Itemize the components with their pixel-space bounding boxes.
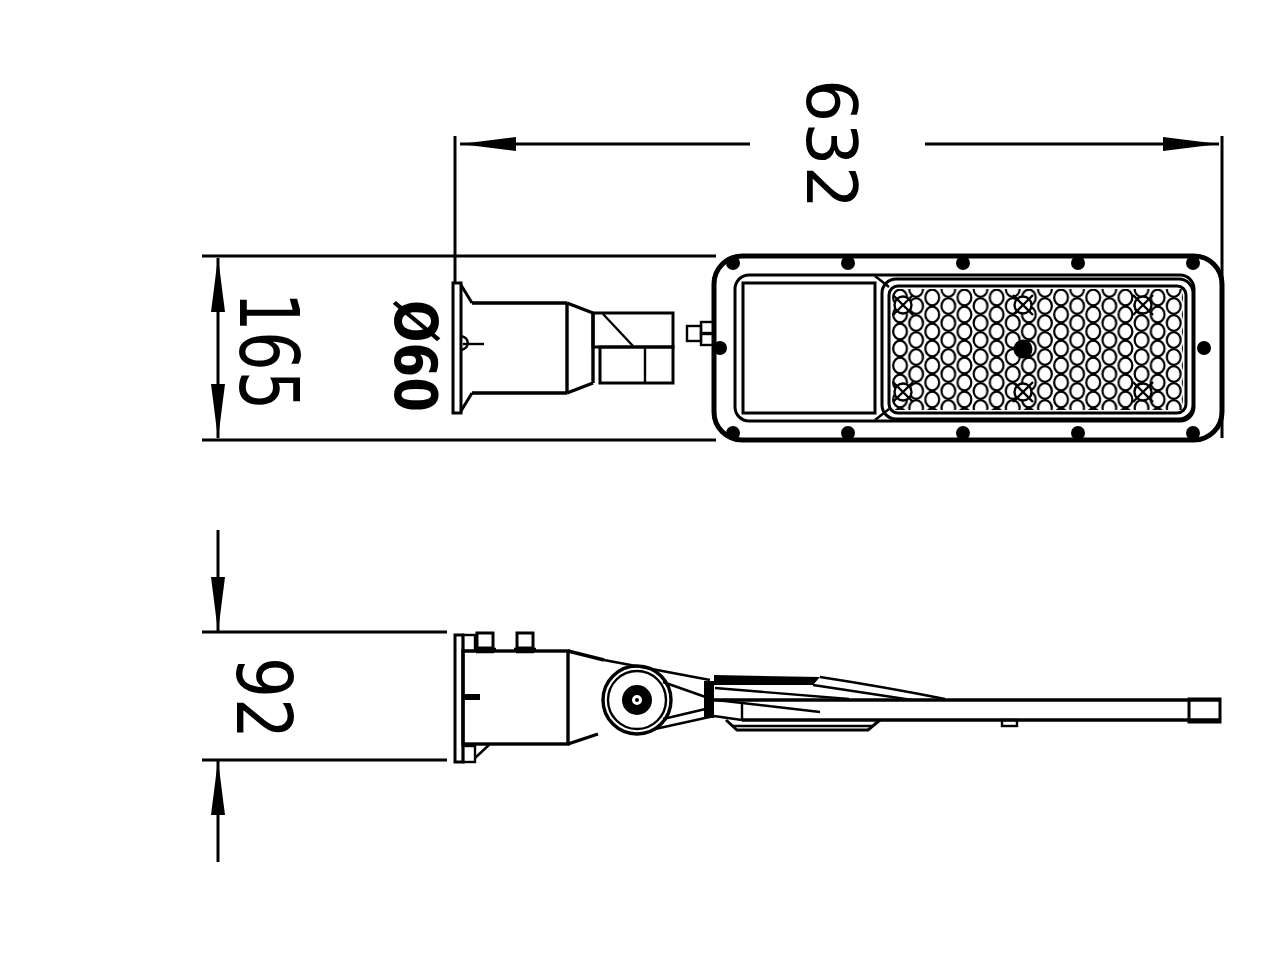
cross-screw-icon bbox=[1013, 382, 1033, 402]
cross-screw-icon bbox=[1013, 295, 1033, 315]
driver-compartment bbox=[743, 283, 875, 413]
arrowhead-left-icon bbox=[460, 137, 516, 151]
plate-chamfer bbox=[475, 744, 490, 758]
screw-dot-icon bbox=[841, 426, 855, 440]
clamp-plate bbox=[453, 283, 461, 413]
arrowhead-up-icon bbox=[211, 760, 225, 815]
screw-dot-icon bbox=[726, 256, 740, 270]
pole-clamp-side bbox=[455, 633, 604, 762]
neck-cover-band bbox=[714, 675, 820, 685]
cross-screw-icon bbox=[1133, 382, 1153, 402]
screw-dot-icon bbox=[1186, 256, 1200, 270]
dim-pole-diameter-label: Ø60 bbox=[381, 300, 449, 412]
clamp-notch bbox=[463, 694, 480, 700]
plate-tab-bottom bbox=[463, 746, 475, 762]
dim-mount-height-label: 92 bbox=[219, 657, 308, 739]
dimension-mount-height: 92 bbox=[202, 530, 447, 862]
side-view: 92 bbox=[202, 530, 1220, 862]
clamp-body bbox=[472, 303, 567, 393]
arm-lower bbox=[600, 347, 673, 383]
screw-dot-icon bbox=[1186, 426, 1200, 440]
clamp-taper bbox=[567, 303, 593, 393]
clamp-bolt-icon bbox=[474, 633, 496, 652]
arm-upper bbox=[593, 313, 673, 347]
screw-dot-icon bbox=[841, 256, 855, 270]
screw-dot-icon bbox=[713, 341, 727, 355]
dim-overall-length-label: 632 bbox=[790, 79, 872, 209]
plate-tab-top bbox=[463, 635, 475, 651]
housing-plan bbox=[713, 256, 1222, 440]
photocell-bump bbox=[1002, 720, 1017, 726]
arrowhead-down-icon bbox=[211, 577, 225, 632]
screw-dot-icon bbox=[956, 426, 970, 440]
arm-diagonal bbox=[603, 314, 633, 346]
clamp-taper bbox=[568, 651, 604, 744]
arm-stub bbox=[687, 326, 701, 341]
screw-dot-icon bbox=[1197, 341, 1211, 355]
arrowhead-right-icon bbox=[1163, 137, 1219, 151]
street-light-drawing: 632 165 Ø60 bbox=[0, 0, 1280, 960]
cross-screw-icon bbox=[893, 382, 913, 402]
top-view: 632 165 Ø60 bbox=[202, 79, 1222, 440]
screw-dot-icon bbox=[1071, 256, 1085, 270]
technical-drawing-page: 632 165 Ø60 bbox=[0, 0, 1280, 960]
cross-screw-icon bbox=[1133, 295, 1153, 315]
screw-dot-icon bbox=[956, 256, 970, 270]
mounting-bracket-plan bbox=[453, 283, 714, 413]
screw-dot-icon bbox=[1071, 426, 1085, 440]
clamp-bolt-icon bbox=[514, 633, 536, 652]
dim-housing-width-label: 165 bbox=[221, 292, 316, 410]
luminaire-body-side bbox=[712, 675, 1220, 730]
pivot-knuckle bbox=[603, 660, 742, 734]
cross-screw-icon bbox=[893, 295, 913, 315]
center-plug-dot bbox=[1014, 340, 1033, 359]
screw-dot-icon bbox=[726, 426, 740, 440]
knuckle-bolt-center bbox=[635, 698, 639, 702]
